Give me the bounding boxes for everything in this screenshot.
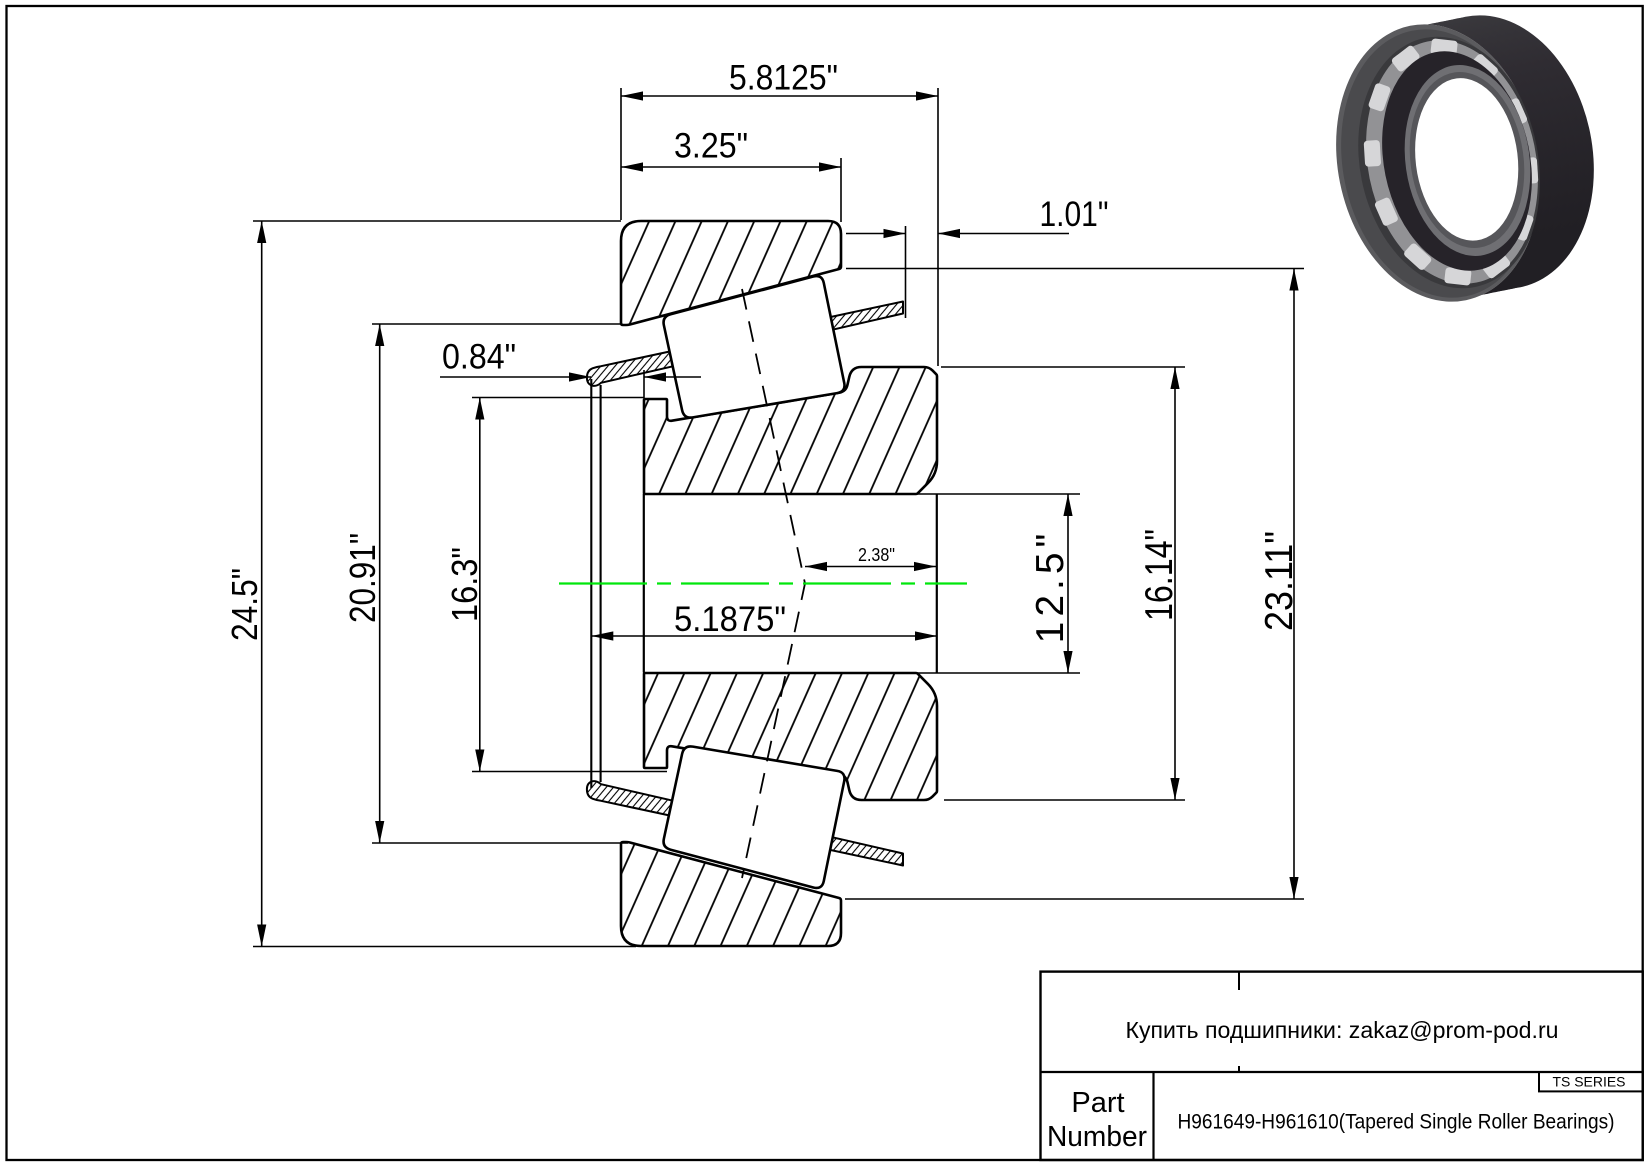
svg-text:20.91": 20.91" [342,533,383,623]
svg-text:23.11": 23.11" [1258,531,1301,631]
svg-text:5.8125": 5.8125" [729,59,838,98]
svg-text:H961649-H961610(Tapered Single: H961649-H961610(Tapered Single Roller Be… [1178,1110,1615,1134]
svg-text:3.25": 3.25" [674,127,748,166]
svg-text:Part: Part [1071,1087,1124,1119]
svg-text:5.1875": 5.1875" [674,600,786,639]
svg-text:TS SERIES: TS SERIES [1553,1074,1626,1090]
svg-text:24.5": 24.5" [224,568,265,641]
svg-text:12.5": 12.5" [1029,529,1072,644]
svg-text:Купить подшипники: zakaz@prom-: Купить подшипники: zakaz@prom-pod.ru [1126,1017,1559,1043]
svg-text:1.01": 1.01" [1040,195,1109,234]
svg-text:0.84": 0.84" [442,338,516,377]
svg-text:2.38": 2.38" [858,545,895,565]
svg-text:16.3": 16.3" [444,547,485,622]
svg-text:Number: Number [1047,1121,1147,1153]
svg-text:16.14": 16.14" [1138,529,1181,621]
